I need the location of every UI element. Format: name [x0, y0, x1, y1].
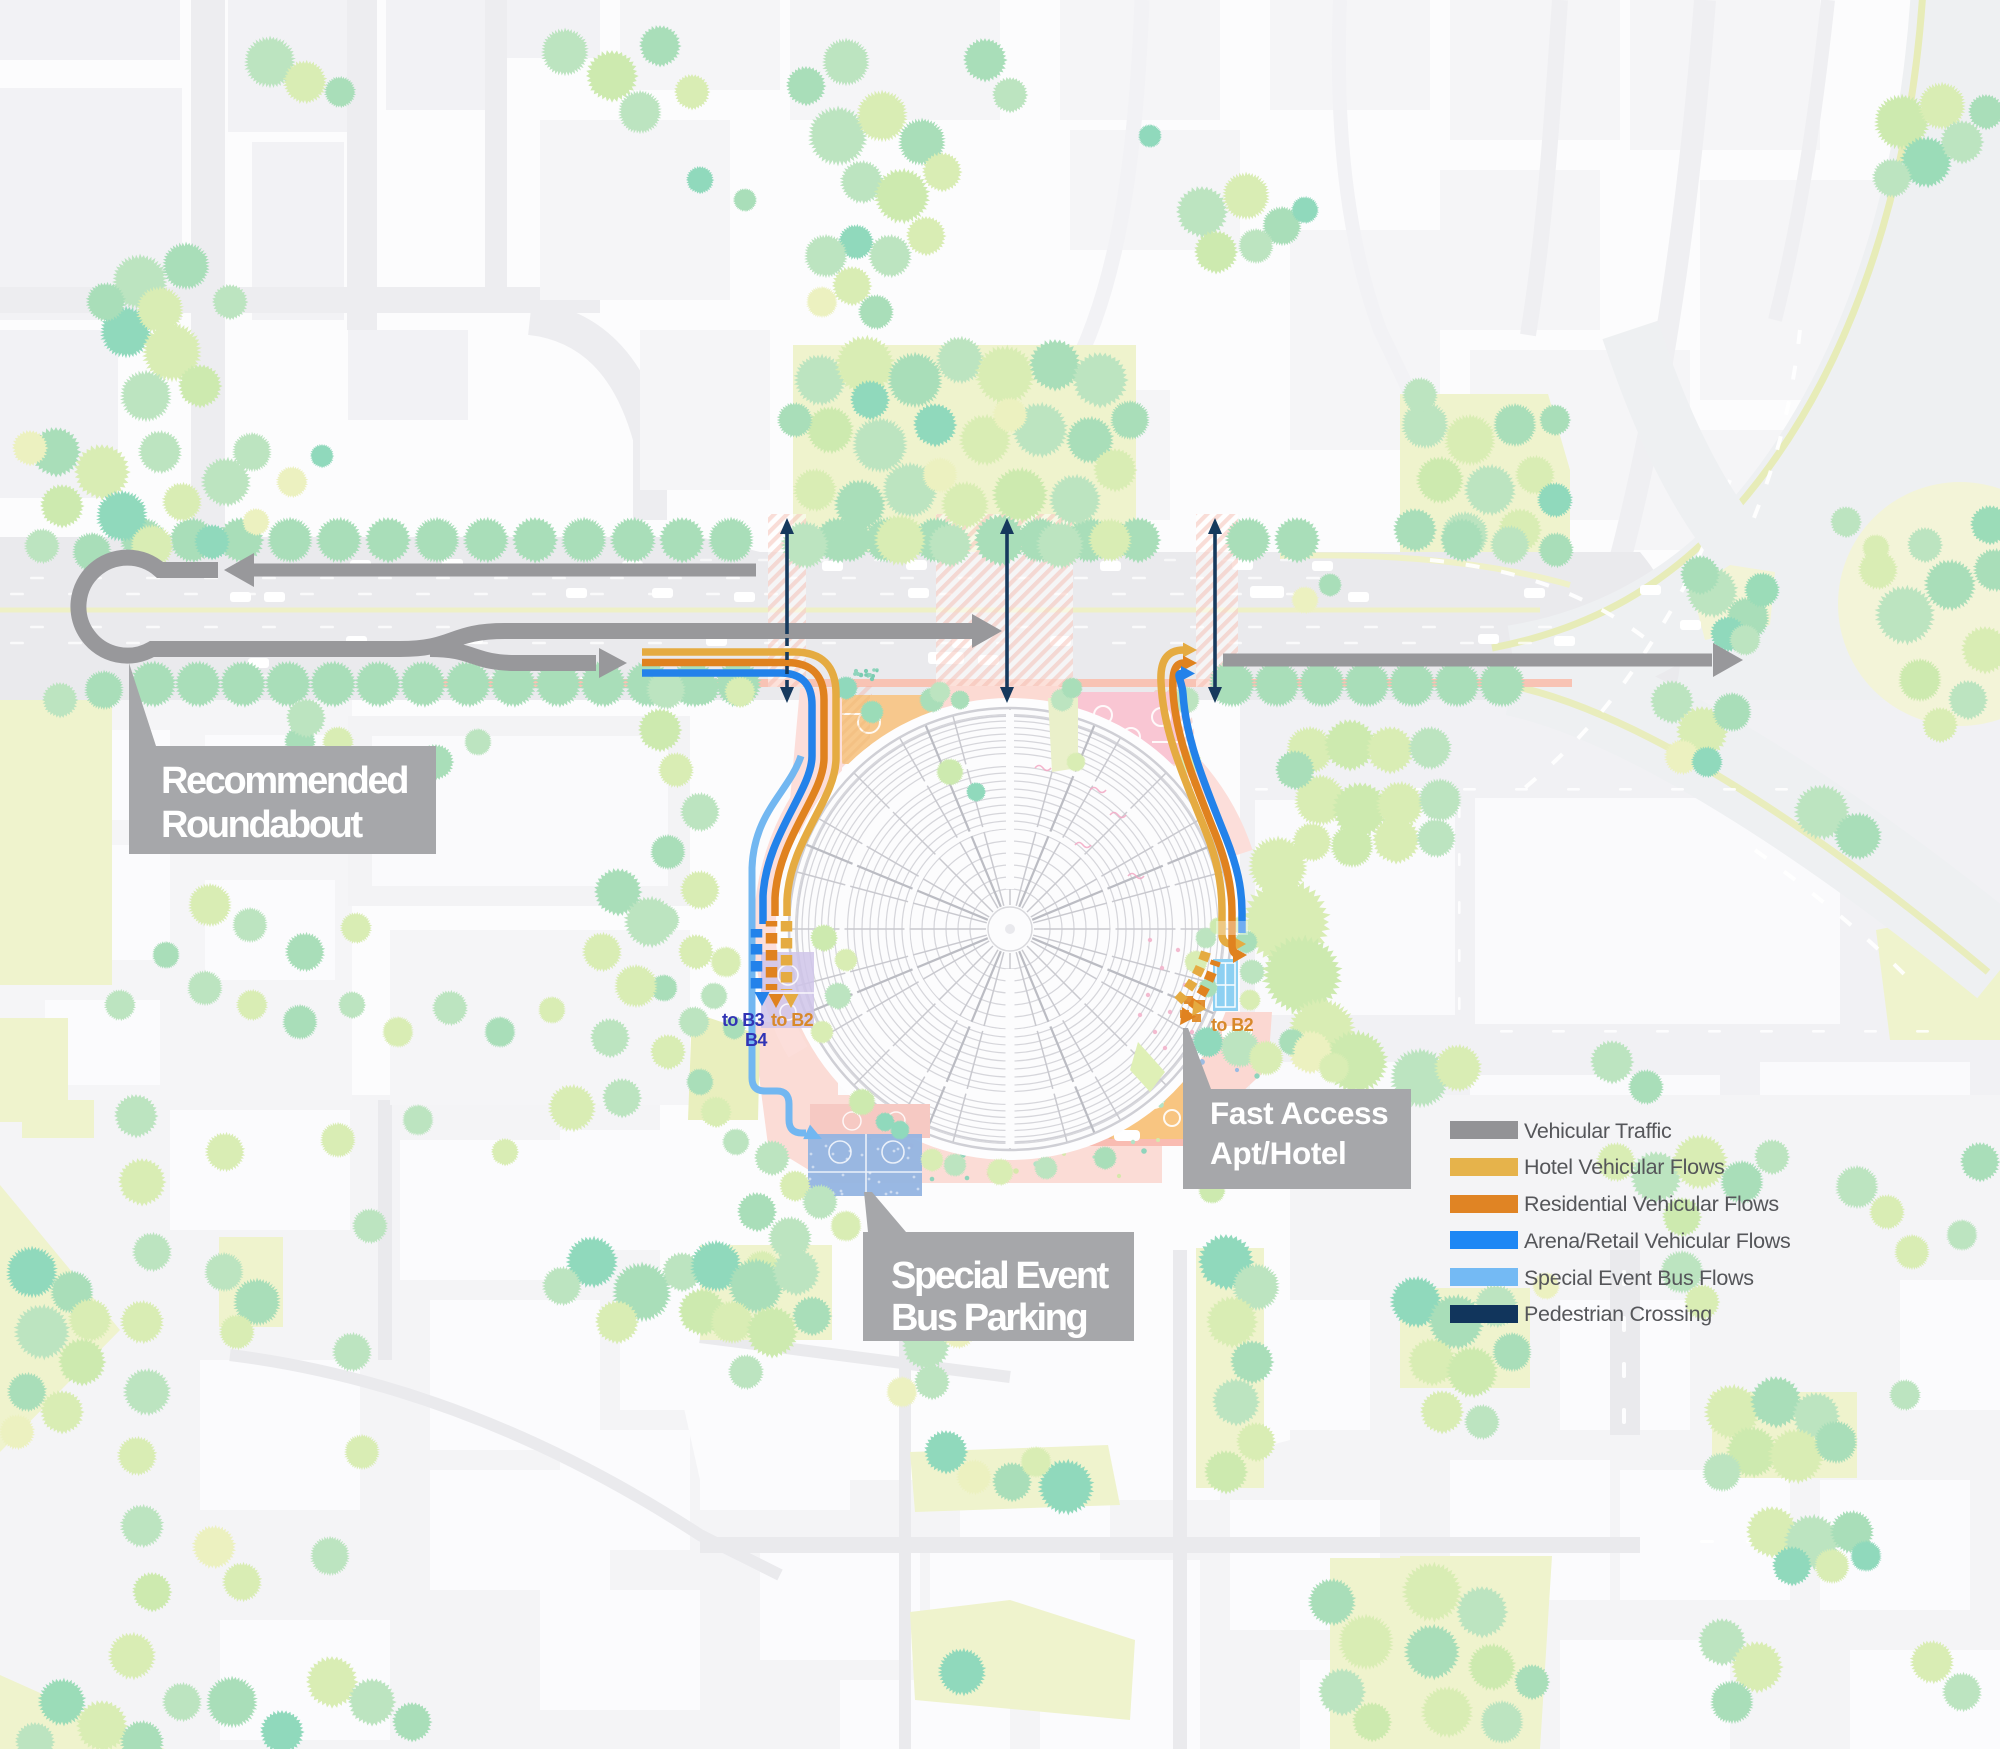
svg-text:B4: B4 [745, 1030, 767, 1050]
svg-text:Residential Vehicular Flows: Residential Vehicular Flows [1524, 1192, 1779, 1216]
svg-text:Special Event Bus Flows: Special Event Bus Flows [1524, 1266, 1754, 1290]
svg-text:Hotel Vehicular Flows: Hotel Vehicular Flows [1524, 1155, 1724, 1179]
svg-text:Roundabout: Roundabout [161, 804, 363, 846]
svg-text:Arena/Retail Vehicular Flows: Arena/Retail Vehicular Flows [1524, 1229, 1790, 1253]
svg-text:Special Event: Special Event [891, 1255, 1110, 1297]
svg-text:Recommended: Recommended [161, 760, 407, 802]
svg-text:to B2: to B2 [771, 1010, 814, 1030]
svg-text:to B3: to B3 [722, 1010, 765, 1030]
svg-text:Bus Parking: Bus Parking [891, 1297, 1087, 1339]
svg-text:Vehicular Traffic: Vehicular Traffic [1524, 1119, 1672, 1143]
svg-text:Apt/Hotel: Apt/Hotel [1210, 1135, 1346, 1171]
svg-text:Fast Access: Fast Access [1210, 1095, 1388, 1131]
svg-text:to B2: to B2 [1211, 1015, 1254, 1035]
svg-text:Pedestrian Crossing: Pedestrian Crossing [1524, 1302, 1712, 1326]
